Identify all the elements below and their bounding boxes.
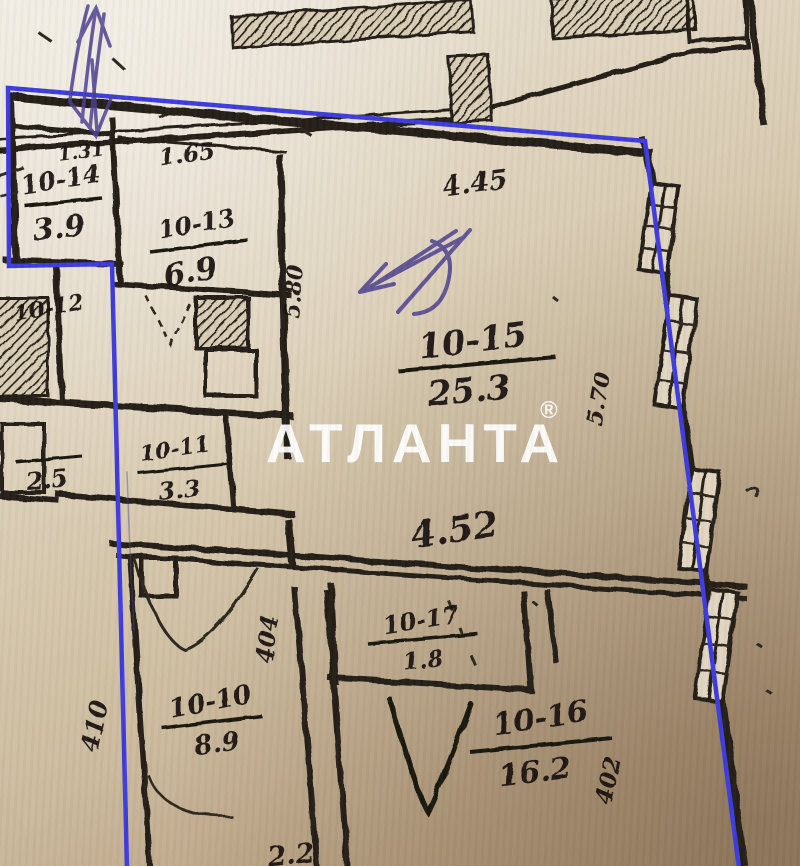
room-10-11-number: 10-11 — [138, 431, 212, 468]
watermark-brand: АТЛАНТА — [266, 412, 565, 474]
dim-room15-top: 4.45 — [440, 164, 509, 203]
dim-room15-right: 5.70 — [582, 369, 617, 427]
dim-room16-right: 402 — [590, 754, 626, 807]
room-10-15-area: 25.3 — [425, 368, 512, 415]
plan-labels: 10-14 3.9 10-13 6.9 10-12 2.5 10-11 3.3 … — [12, 138, 627, 866]
room-10-16-number: 10-16 — [490, 694, 590, 744]
room-10-16-area: 16.2 — [496, 751, 573, 795]
watermark: АТЛАНТА ® — [266, 397, 565, 474]
floor-plan-svg: 10-14 3.9 10-13 6.9 10-12 2.5 10-11 3.3 … — [0, 0, 800, 866]
registered-trademark-icon: ® — [540, 397, 564, 424]
dim-hall-top: 1.65 — [158, 138, 217, 172]
dim-room10-right: 404 — [251, 614, 284, 665]
dim-bottom-edge: 2.2 — [265, 838, 316, 866]
room-10-10-area: 8.9 — [192, 726, 242, 761]
room-10-13-number: 10-13 — [156, 203, 237, 245]
room-10-14-area: 3.9 — [31, 208, 87, 248]
floor-plan-photo: 10-14 3.9 10-13 6.9 10-12 2.5 10-11 3.3 … — [0, 0, 800, 866]
room-10-17-area: 1.8 — [402, 645, 445, 676]
room-10-17-number: 10-17 — [380, 599, 461, 640]
dim-room10-left: 410 — [75, 697, 114, 755]
dim-room15-left: 5.80 — [279, 263, 309, 319]
room-10-12-area: 2.5 — [24, 463, 70, 496]
apartment-walls — [0, 97, 744, 866]
dim-room15-bottom: 4.52 — [408, 503, 501, 557]
pen-arrow-up-scribble — [70, 6, 112, 136]
pen-mid-scribble — [360, 230, 470, 314]
room-10-11-area: 3.3 — [157, 473, 201, 506]
